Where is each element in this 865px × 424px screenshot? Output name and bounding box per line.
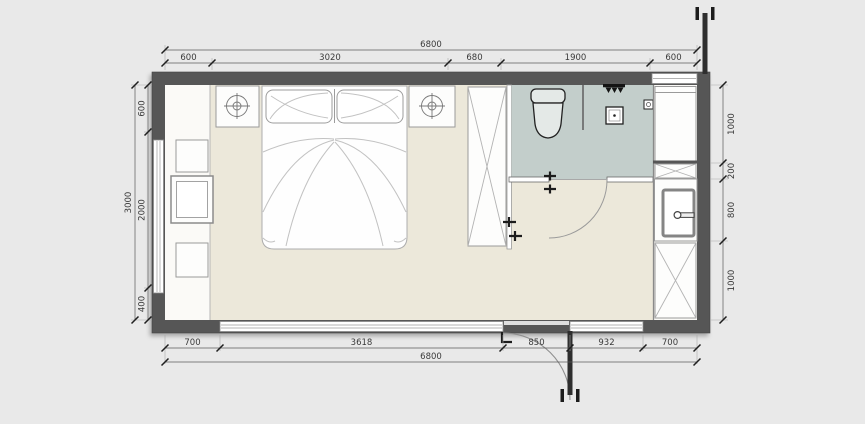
window-bottom-large (220, 322, 503, 332)
dim-right-seg-1: 200 (727, 163, 737, 179)
dim-bottom-seg-0: 700 (184, 338, 200, 348)
dim-bottom-overall: 6800 (420, 352, 442, 362)
floor-plan: 6800 600 3020 680 1900 600 700 3618 850 … (0, 0, 865, 424)
dim-top-overall: 6800 (420, 40, 442, 50)
dim-right-seg-2: 800 (727, 202, 737, 218)
wardrobe (468, 87, 506, 246)
bathroom-wall-south-right (607, 177, 653, 182)
dim-bottom-seg-1: 3618 (351, 338, 373, 348)
window-top-right (652, 74, 697, 84)
dim-bottom-seg-2: 850 (528, 338, 544, 348)
wall-mixer (644, 100, 653, 109)
cabinet-box-2 (171, 176, 213, 223)
cabinet-top-right (655, 87, 696, 162)
dim-bottom-seg-4: 700 (662, 338, 678, 348)
nightstand-left (216, 86, 259, 127)
dim-bottom-seg-3: 932 (598, 338, 614, 348)
dim-top-seg-3: 1900 (565, 53, 587, 63)
floor-drain (606, 107, 623, 124)
faucet-icon (674, 212, 694, 219)
left-counter (165, 85, 213, 320)
floor-plan-screenshot: 6800 600 3020 680 1900 600 700 3618 850 … (0, 0, 865, 424)
dim-left-seg-1: 2000 (138, 199, 148, 221)
nightstand-right (409, 86, 455, 127)
dim-top-seg-0: 600 (180, 53, 196, 63)
dim-right-seg-3: 1000 (727, 270, 737, 292)
threshold (504, 321, 569, 325)
door-leaf (703, 13, 708, 74)
window-bottom-small (570, 322, 643, 332)
right-column (653, 85, 697, 320)
dim-right-seg-0: 1000 (727, 113, 737, 135)
pillow-left (266, 90, 332, 123)
dim-left-overall: 3000 (124, 192, 134, 214)
dim-left-seg-0: 600 (138, 100, 148, 116)
bed (262, 86, 407, 249)
bathroom-wall-south-left (509, 177, 549, 182)
pillow-right (337, 90, 403, 123)
sink-vanity (655, 179, 698, 241)
dim-top-seg-2: 680 (466, 53, 482, 63)
window-left-wall (154, 140, 164, 293)
shelf-x-band (655, 164, 696, 178)
cabinet-box-1 (176, 140, 208, 172)
dim-top-seg-1: 3020 (319, 53, 341, 63)
dim-top-seg-4: 600 (665, 53, 681, 63)
dim-left-seg-2: 400 (138, 296, 148, 312)
wall-stub (653, 161, 697, 164)
cabinet-box-3 (176, 243, 208, 277)
cabinet-bottom-right (655, 243, 696, 318)
